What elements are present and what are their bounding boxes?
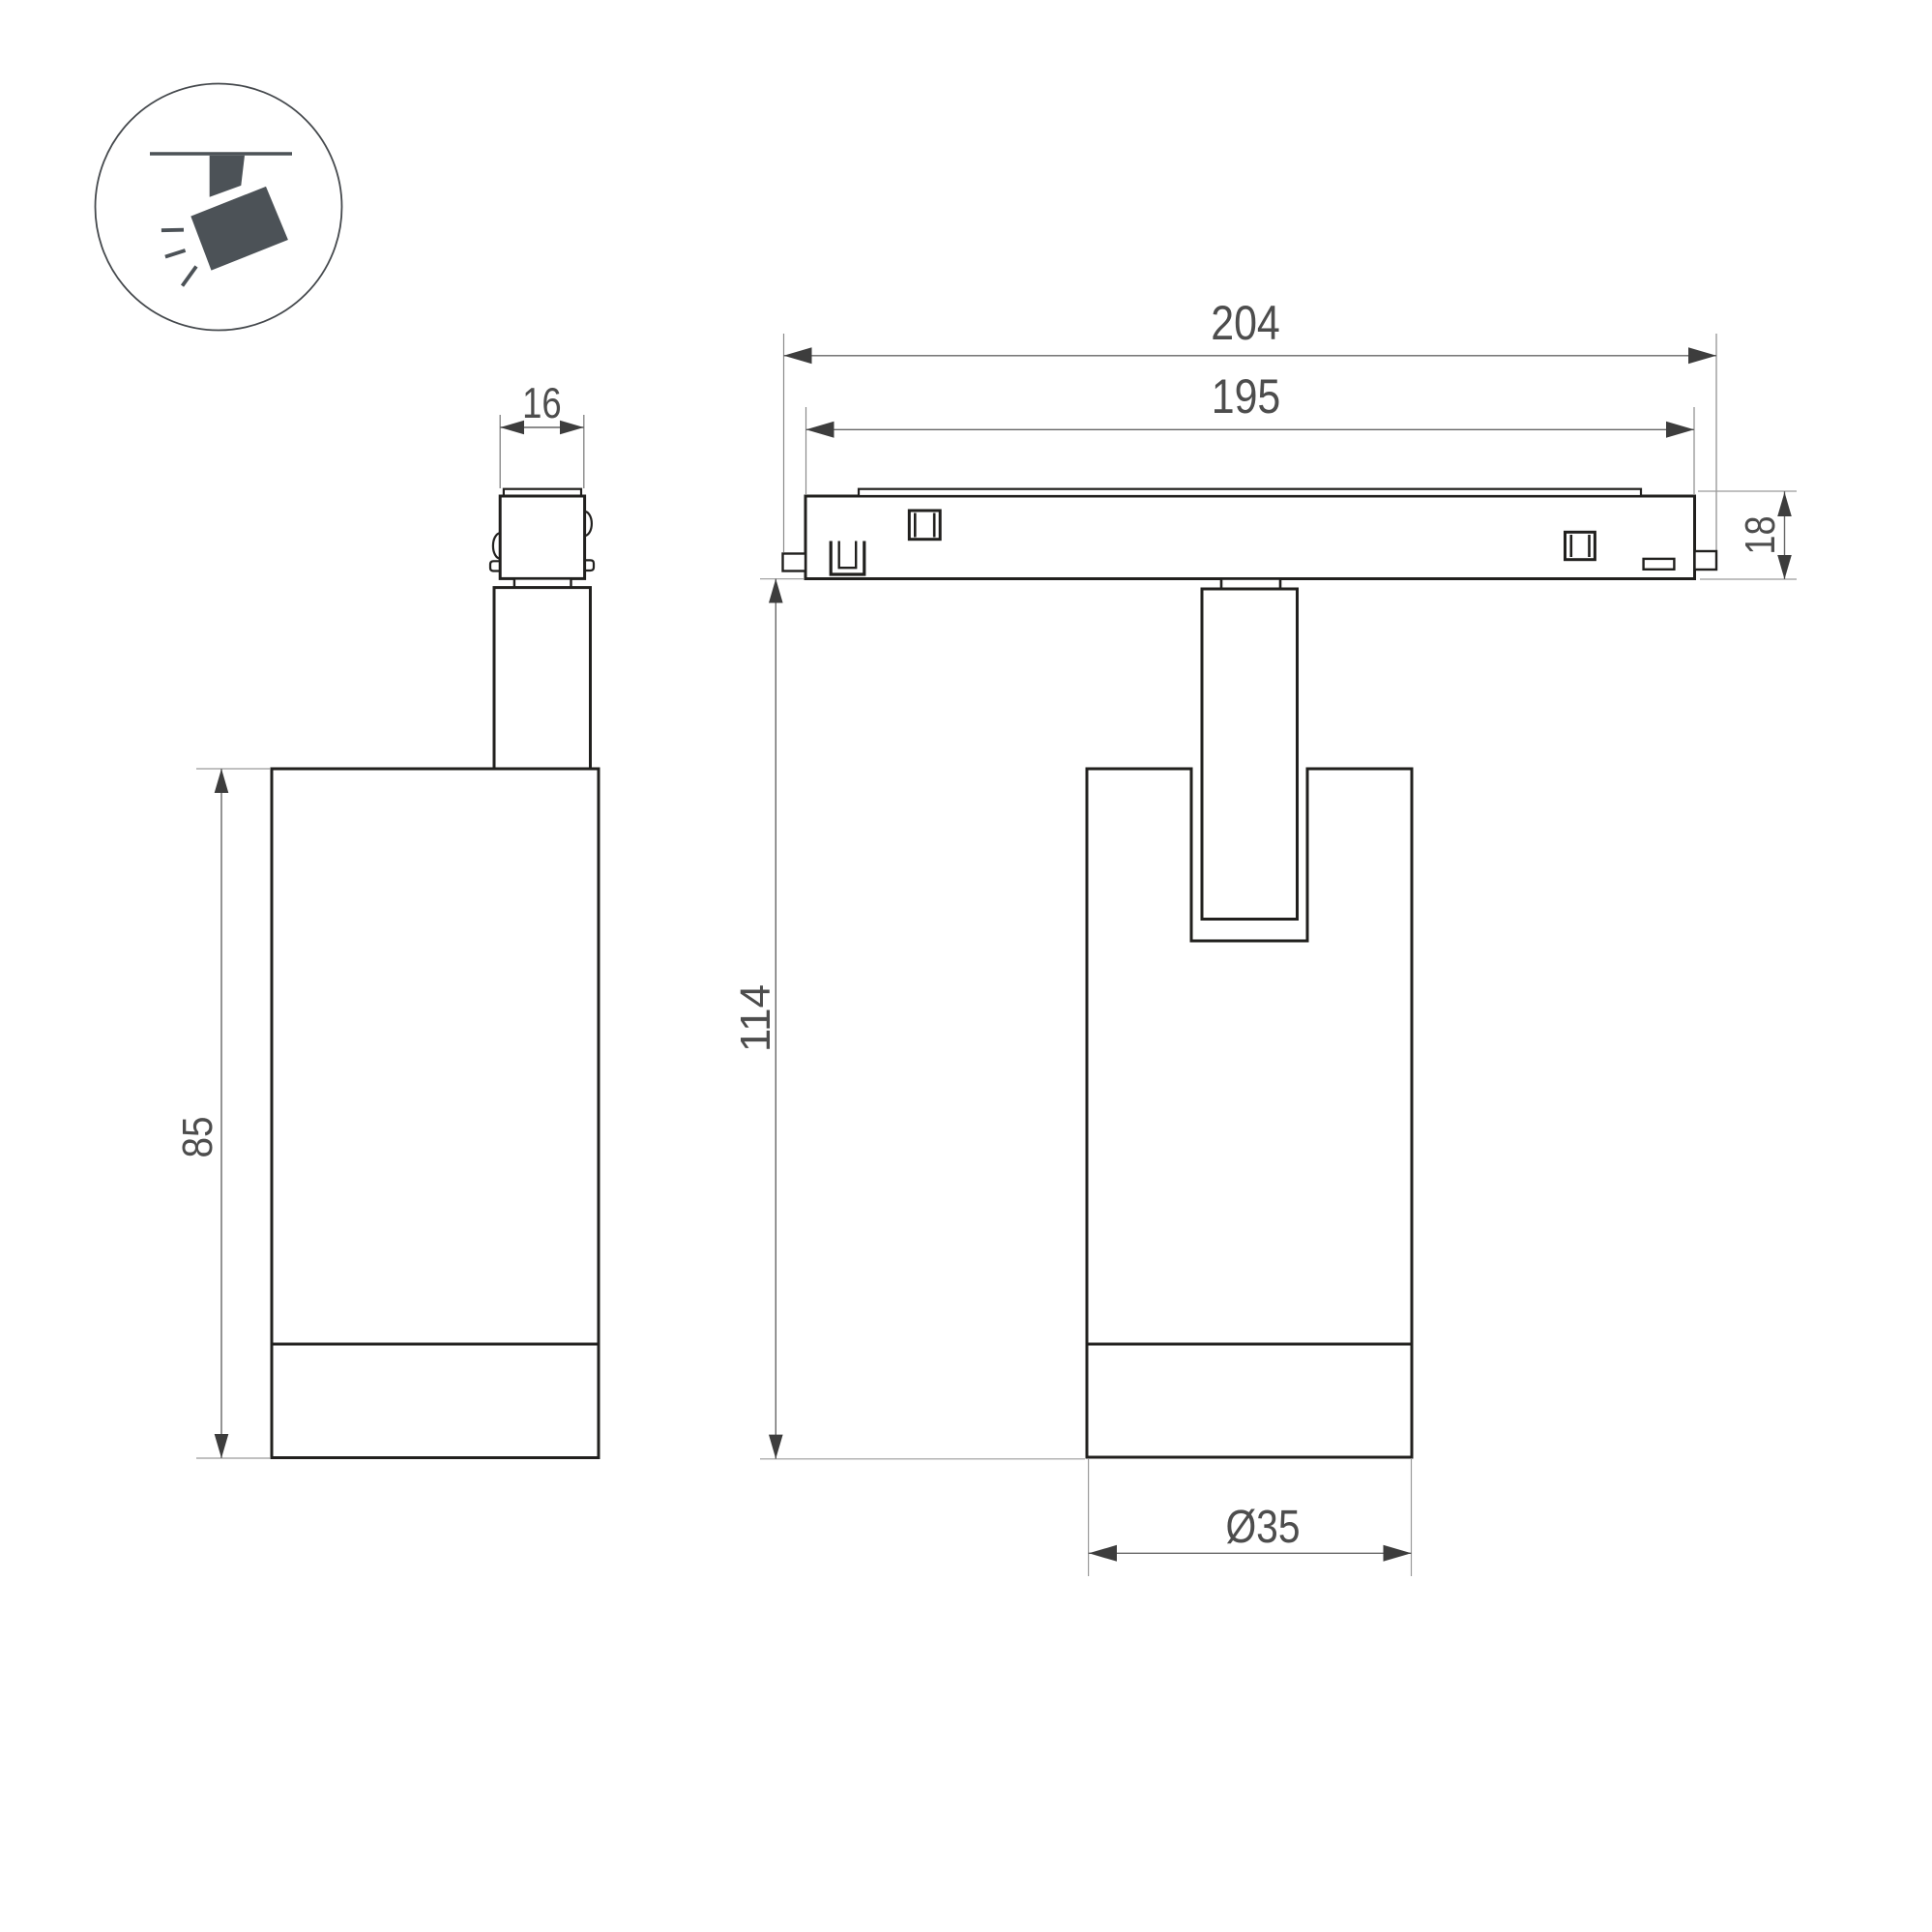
svg-text:195: 195 (1212, 369, 1281, 424)
svg-text:Ø35: Ø35 (1225, 1502, 1300, 1553)
svg-text:85: 85 (173, 1116, 221, 1157)
svg-text:18: 18 (1737, 515, 1784, 554)
svg-text:114: 114 (732, 984, 779, 1052)
svg-text:204: 204 (1211, 296, 1280, 350)
svg-text:16: 16 (522, 379, 562, 427)
